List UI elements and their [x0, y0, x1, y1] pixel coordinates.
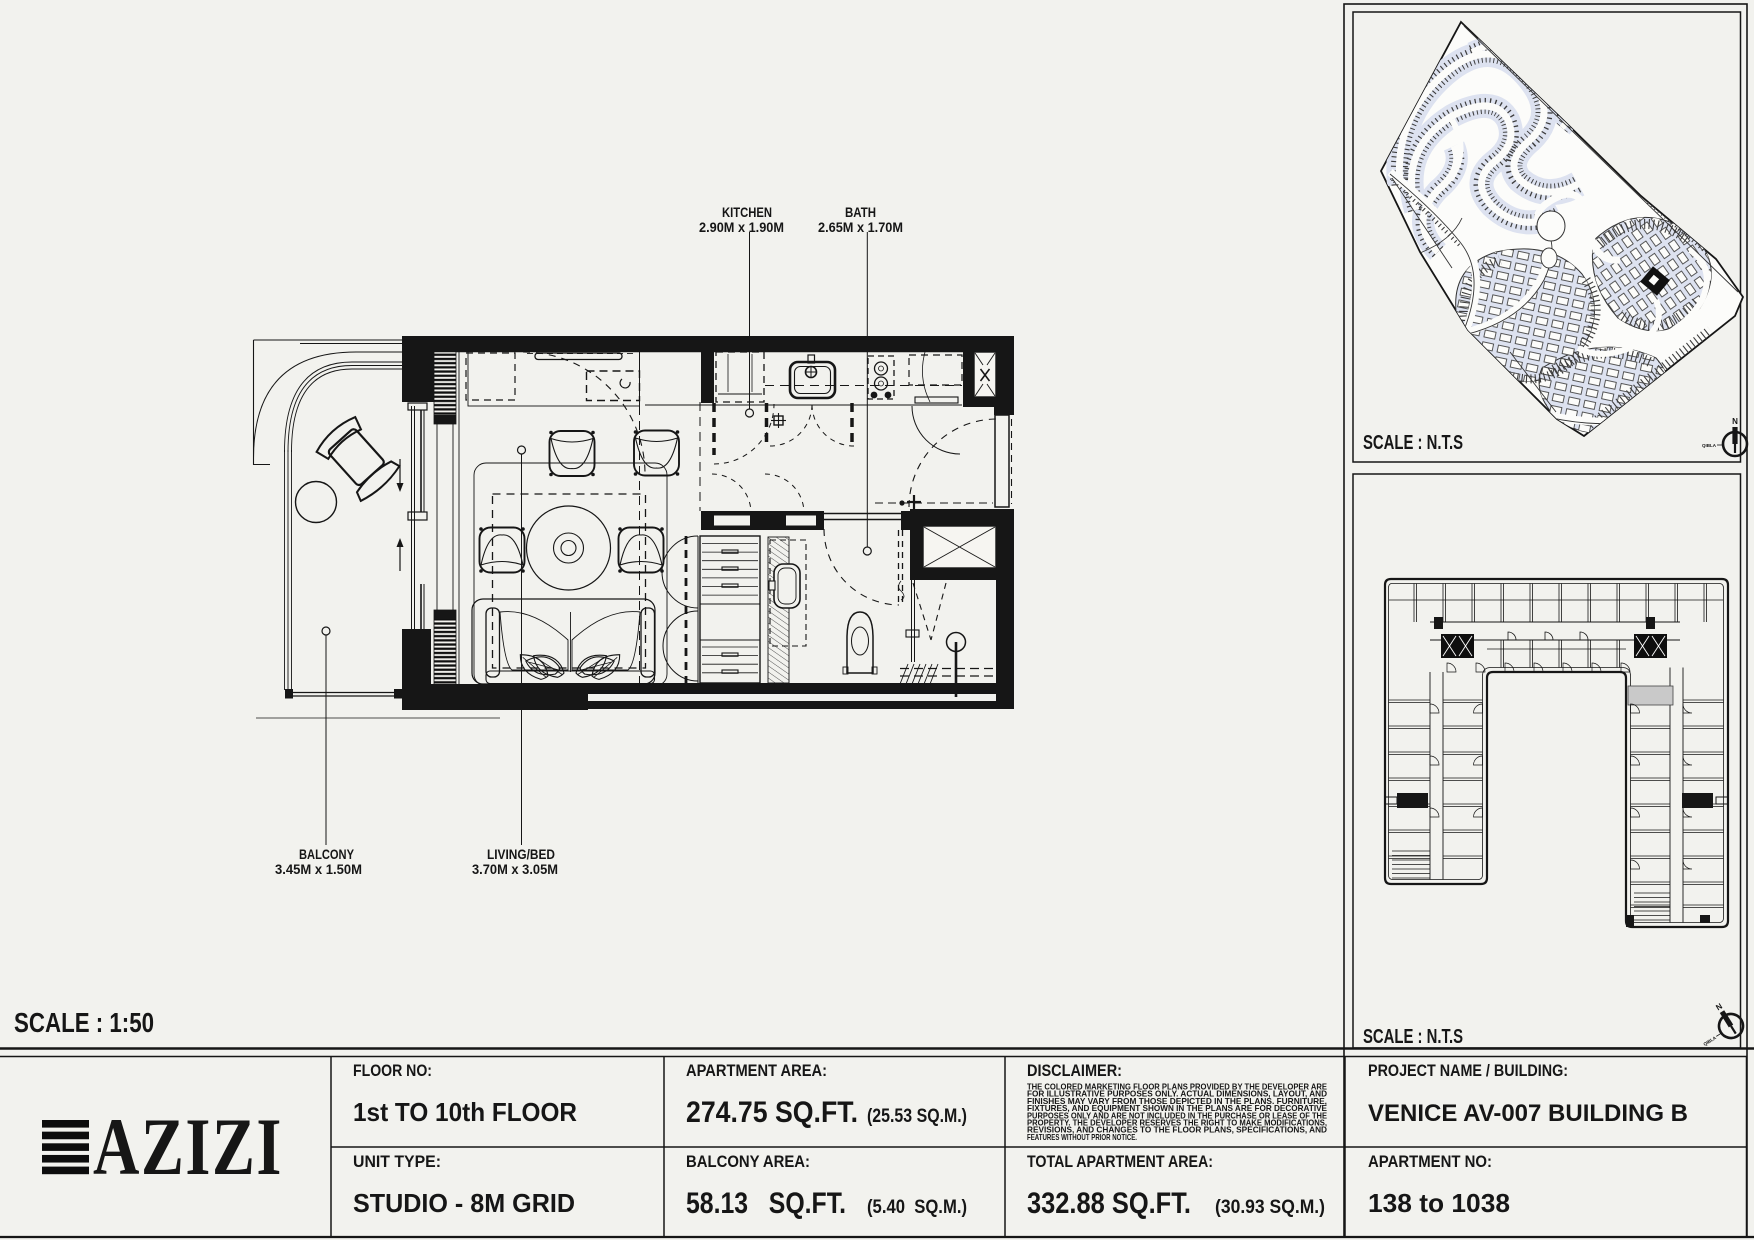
svg-text:AZIZI: AZIZI — [93, 1101, 283, 1192]
svg-text:FEATURES WITHOUT PRIOR NOTICE.: FEATURES WITHOUT PRIOR NOTICE. — [1027, 1133, 1137, 1142]
svg-text:BALCONY AREA:: BALCONY AREA: — [686, 1153, 810, 1171]
svg-text:STUDIO - 8M GRID: STUDIO - 8M GRID — [353, 1188, 575, 1218]
svg-text:UNIT TYPE:: UNIT TYPE: — [353, 1153, 441, 1171]
svg-text:APARTMENT NO:: APARTMENT NO: — [1368, 1153, 1492, 1171]
svg-text:2.65M x 1.70M: 2.65M x 1.70M — [818, 219, 903, 235]
svg-text:TOTAL APARTMENT AREA:: TOTAL APARTMENT AREA: — [1027, 1153, 1213, 1171]
svg-text:SCALE : N.T.S: SCALE : N.T.S — [1363, 432, 1463, 454]
svg-text:N: N — [1732, 417, 1738, 426]
svg-text:DISCLAIMER:: DISCLAIMER: — [1027, 1062, 1122, 1080]
svg-text:3.45M x 1.50M: 3.45M x 1.50M — [275, 861, 362, 877]
svg-text:KITCHEN: KITCHEN — [722, 204, 772, 220]
svg-text:BATH: BATH — [845, 204, 876, 220]
svg-text:SCALE : 1:50: SCALE : 1:50 — [14, 1007, 154, 1038]
svg-text:FLOOR NO:: FLOOR NO: — [353, 1062, 432, 1080]
svg-text:3.70M x 3.05M: 3.70M x 3.05M — [472, 861, 558, 877]
svg-text:274.75 SQ.FT.: 274.75 SQ.FT. — [686, 1096, 858, 1129]
svg-text:LIVING/BED: LIVING/BED — [487, 846, 555, 862]
svg-text:58.13 SQ.FT.: 58.13 SQ.FT. — [686, 1187, 846, 1220]
svg-text:QIBLA: QIBLA — [1702, 443, 1717, 448]
svg-text:VENICE AV-007 BUILDING B: VENICE AV-007 BUILDING B — [1368, 1100, 1688, 1127]
svg-text:1st TO 10th FLOOR: 1st TO 10th FLOOR — [353, 1097, 577, 1127]
svg-text:APARTMENT AREA:: APARTMENT AREA: — [686, 1062, 827, 1080]
svg-text:(5.40 SQ.M.): (5.40 SQ.M.) — [867, 1197, 967, 1218]
svg-text:332.88 SQ.FT.: 332.88 SQ.FT. — [1027, 1187, 1191, 1220]
svg-text:PROJECT NAME / BUILDING:: PROJECT NAME / BUILDING: — [1368, 1062, 1568, 1080]
svg-text:BALCONY: BALCONY — [299, 846, 355, 862]
svg-text:(30.93 SQ.M.): (30.93 SQ.M.) — [1215, 1197, 1325, 1218]
svg-text:2.90M x 1.90M: 2.90M x 1.90M — [699, 219, 784, 235]
svg-text:SCALE : N.T.S: SCALE : N.T.S — [1363, 1026, 1463, 1048]
svg-text:(25.53 SQ.M.): (25.53 SQ.M.) — [867, 1106, 967, 1127]
svg-text:138 to 1038: 138 to 1038 — [1368, 1188, 1510, 1218]
